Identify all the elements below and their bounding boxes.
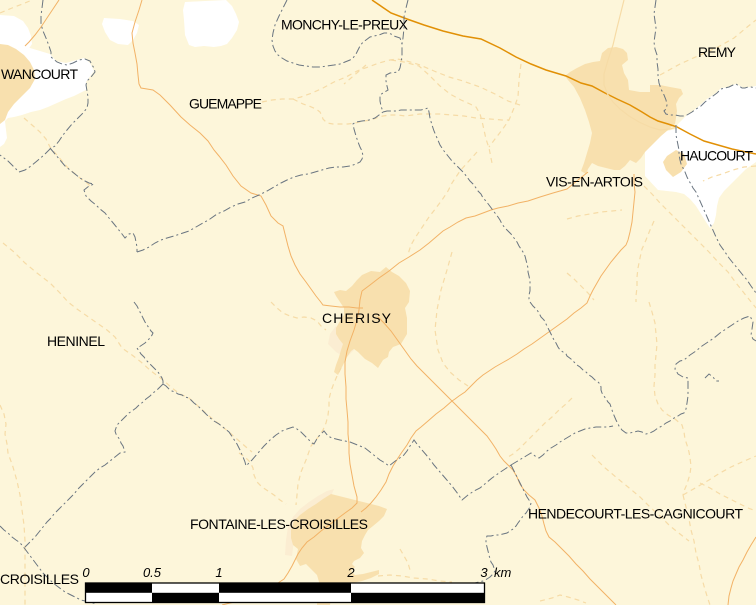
svg-text:CROISILLES: CROISILLES [0,571,79,587]
svg-text:VIS-EN-ARTOIS: VIS-EN-ARTOIS [546,174,643,190]
svg-text:HENDECOURT-LES-CAGNICOURT: HENDECOURT-LES-CAGNICOURT [528,506,743,522]
svg-text:MONCHY-LE-PREUX: MONCHY-LE-PREUX [281,17,409,33]
svg-text:FONTAINE-LES-CROISILLES: FONTAINE-LES-CROISILLES [190,516,368,532]
svg-text:GUEMAPPE: GUEMAPPE [189,96,262,112]
svg-text:0.5: 0.5 [143,565,162,580]
svg-text:1: 1 [215,565,222,580]
svg-text:REMY: REMY [698,44,737,60]
svg-text:3: 3 [480,565,488,580]
svg-text:0: 0 [82,565,90,580]
svg-text:km: km [494,565,512,580]
svg-text:CHERISY: CHERISY [322,310,392,326]
svg-text:WANCOURT: WANCOURT [1,66,78,82]
svg-text:HENINEL: HENINEL [47,333,105,349]
svg-text:HAUCOURT: HAUCOURT [680,148,753,164]
svg-text:2: 2 [346,565,355,580]
